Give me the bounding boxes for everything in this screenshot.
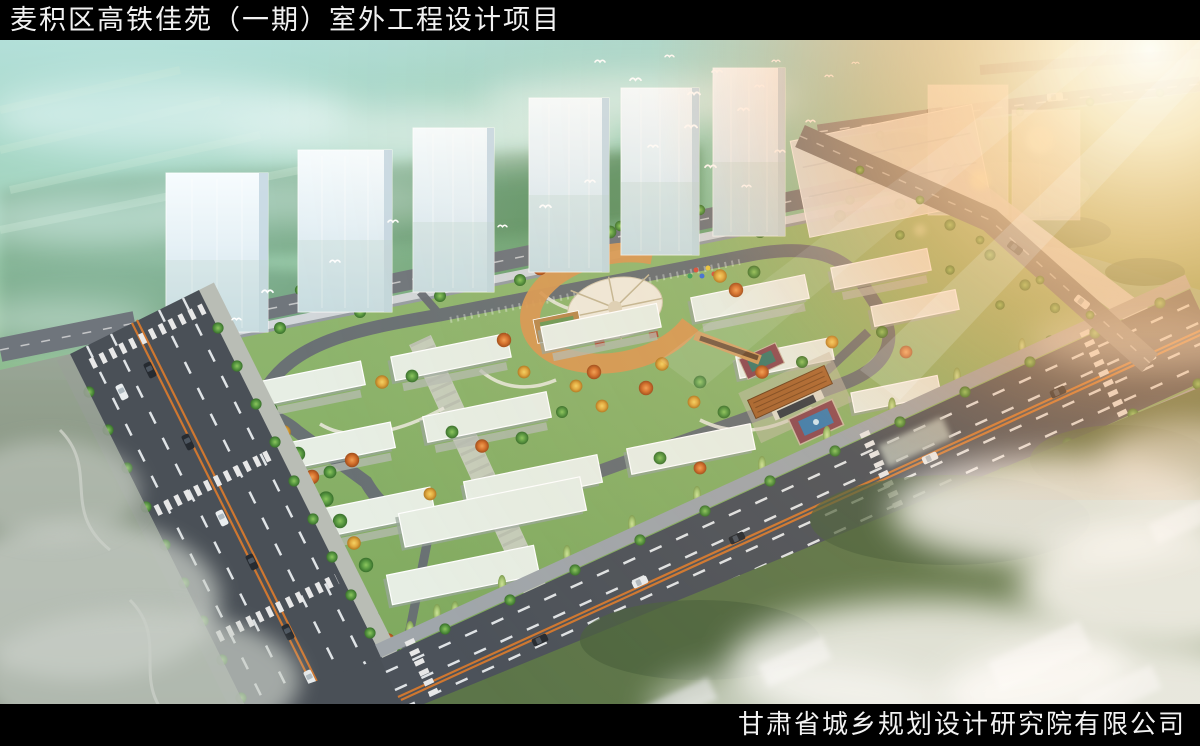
presentation-board: 麦积区高铁佳苑（一期）室外工程设计项目 (0, 0, 1200, 746)
project-title: 麦积区高铁佳苑（一期）室外工程设计项目 (10, 5, 561, 35)
credit-bar: 甘肃省城乡规划设计研究院有限公司 (0, 704, 1200, 746)
aerial-rendering (0, 40, 1200, 704)
title-bar: 麦积区高铁佳苑（一期）室外工程设计项目 (0, 0, 1200, 40)
company-credit: 甘肃省城乡规划设计研究院有限公司 (738, 710, 1186, 739)
sun-glare (0, 40, 1200, 704)
